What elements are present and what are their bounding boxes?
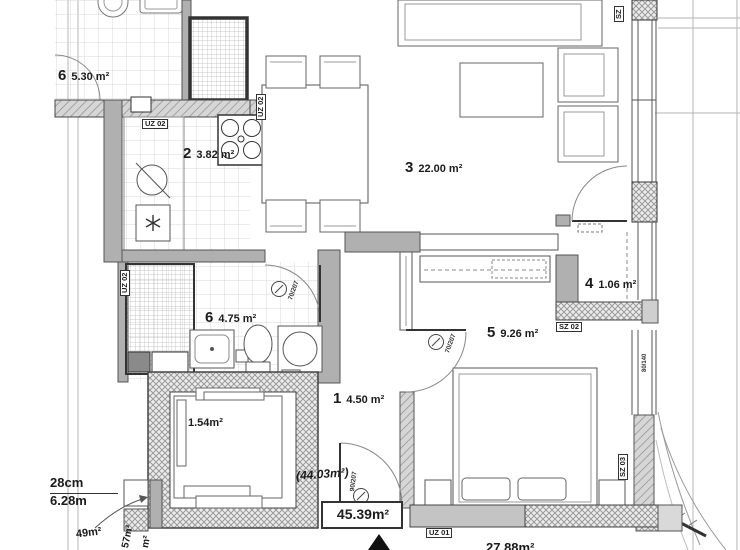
bedroom-room	[406, 256, 625, 508]
wall	[556, 255, 578, 302]
bedroom-window-size: 80/140	[642, 354, 648, 372]
wall-tag-sz02: SZ 02	[556, 322, 582, 332]
dining-table-icon	[262, 85, 368, 203]
fixture-icon	[140, 0, 182, 13]
room-number: 2	[183, 145, 191, 162]
neighbor-shower	[190, 18, 247, 100]
hall-label: 14.50 m²	[333, 391, 384, 407]
bottom-area-label: 27.88m²	[486, 541, 534, 550]
wall	[400, 392, 414, 508]
wall	[122, 250, 265, 262]
room-number: 6	[205, 309, 213, 326]
pillow-icon	[518, 478, 566, 500]
wall	[410, 505, 525, 527]
living-label: 322.00 m²	[405, 160, 462, 176]
nightstand-icon	[599, 480, 625, 506]
wall	[556, 215, 570, 226]
wall-tag-uz02-bath: UZ 02	[120, 270, 130, 296]
armchair-icon	[558, 106, 618, 162]
plan-geometry	[0, 0, 740, 550]
pillow-icon	[462, 478, 510, 500]
room-area: 4.75 m²	[218, 313, 256, 325]
beam	[420, 234, 558, 250]
wall	[556, 302, 642, 320]
floor-plan: 65.30 m² 23.82 m² 322.00 m² 41.06 m² 59.…	[0, 0, 740, 550]
room-area: 5.30 m²	[71, 71, 109, 83]
room-number: 4	[585, 275, 593, 292]
wall-tag-uz01: UZ 01	[426, 528, 452, 538]
room-area: 1.06 m²	[598, 279, 636, 291]
room-area: 4.50 m²	[346, 394, 384, 406]
total-area-label: 45.39m²	[330, 507, 396, 521]
room-number: 5	[487, 324, 495, 341]
dimension-m: 6.28m	[50, 494, 87, 507]
wall	[658, 505, 682, 531]
wall-tag-sz-top: SZ	[614, 6, 624, 22]
wall-tag-uz02-kitchen: UZ 02	[142, 119, 168, 129]
living-room	[262, 0, 618, 232]
balcony-label: 41.06 m²	[585, 276, 636, 292]
bedroom-label: 59.26 m²	[487, 325, 538, 341]
wall	[104, 100, 122, 262]
wall	[345, 232, 420, 252]
room-area: 22.00 m²	[418, 163, 462, 175]
wall-tag-uz02-stub: UZ 02	[256, 94, 266, 120]
dimension-cm: 28cm	[50, 475, 83, 490]
paren-area-label: (44.03m²)	[296, 466, 349, 482]
bathroom-label: 64.75 m²	[205, 310, 256, 326]
north-arrow-icon	[368, 534, 390, 550]
room-number: 1	[333, 390, 341, 407]
elevator-area-label: 1.54m²	[188, 418, 223, 429]
room-area: 9.26 m²	[500, 328, 538, 340]
area-note-c: m²	[141, 535, 153, 549]
east-wall-windows	[627, 0, 658, 531]
balcony-door-arc	[572, 166, 627, 221]
wall	[150, 480, 162, 528]
wall	[525, 505, 658, 527]
shower-step	[152, 352, 188, 372]
room-number: 6	[58, 67, 66, 84]
dimension-block-top: 28cm	[50, 475, 118, 494]
coffee-table-icon	[460, 63, 543, 117]
elevator-shaft	[148, 372, 318, 528]
room-area: 3.82 m²	[196, 149, 234, 161]
armchair-icon	[558, 48, 618, 102]
door-strike-box	[131, 97, 151, 112]
nightstand-icon	[425, 480, 451, 506]
room-number: 3	[405, 159, 413, 176]
wall	[124, 480, 148, 506]
wall-tag-sz03: SZ 03	[618, 454, 628, 480]
wall	[642, 300, 658, 323]
neighbor-room	[55, 0, 268, 117]
shower-step	[128, 352, 150, 372]
neighbor-room-label: 65.30 m²	[58, 68, 109, 84]
threshold-tag	[578, 224, 602, 232]
sofa-icon	[398, 0, 602, 46]
washer-icon	[278, 326, 322, 372]
kitchen-label: 23.82 m²	[183, 146, 234, 162]
toilet-icon	[244, 325, 272, 363]
entry-door-arc	[340, 443, 402, 505]
kitchen-room	[104, 100, 266, 262]
